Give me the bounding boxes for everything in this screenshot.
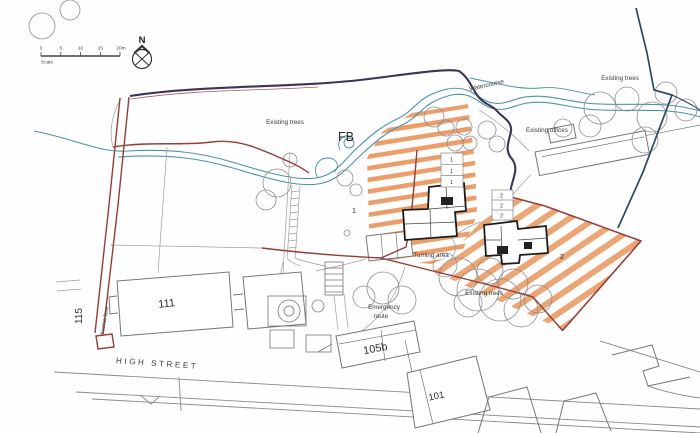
bay1-label: 1 [450, 169, 453, 175]
scale-tick-20m: 20m [116, 46, 125, 52]
high-street-label: HIGH STREET [116, 356, 199, 371]
existing-offices-label: Existing offices [526, 127, 568, 134]
emergency-route-label-2: route [374, 313, 389, 320]
bay1-label: 1 [450, 158, 453, 164]
north-label: N [139, 35, 146, 46]
existing-trees-topright-label: Existing trees [601, 75, 639, 82]
scale-label: Scale [41, 60, 53, 66]
parking-bays-plot2: 2 2 2 [492, 190, 513, 220]
existing-trees-center-label: Existing trees [465, 290, 503, 297]
house-111-label: 111 [158, 297, 176, 311]
bay2-label: 2 [500, 214, 503, 220]
bay2-label: 2 [500, 194, 503, 200]
high-street-road [54, 372, 700, 433]
scale-bar [41, 52, 120, 56]
site-plan: 1 1 1 2 2 2 0 5 10 15 20m Scale N Existi… [0, 0, 700, 433]
boundary-dark-blue [618, 8, 700, 228]
north-arrow-icon [133, 46, 152, 69]
building-101 [407, 356, 490, 428]
house-115-label: 115 [74, 308, 85, 324]
scale-tick-5: 5 [59, 46, 62, 52]
scale-tick-10: 10 [78, 46, 84, 52]
footbridge-label: FB [338, 130, 354, 144]
bay1-label: 1 [450, 180, 453, 186]
plot2-number: 2 [560, 252, 564, 261]
access-lane-label: Access lane [100, 306, 111, 336]
parking-bays-plot1: 1 1 1 [441, 153, 463, 187]
emergency-route-label-1: Emergency [368, 304, 401, 311]
building-street-b [556, 393, 611, 433]
bay2-label: 2 [500, 204, 503, 210]
existing-trees-belt-label: Existing trees [266, 119, 304, 126]
building-adjacent-111 [243, 272, 306, 329]
site-plan-canvas: 1 1 1 2 2 2 0 5 10 15 20m Scale N Existi… [0, 0, 700, 433]
turning-area-label: Turning area [413, 252, 449, 259]
scale-tick-0: 0 [40, 46, 43, 52]
watercourse-stream [34, 78, 700, 185]
watercourse-label: Watercourse [469, 78, 506, 93]
plot1-number: 1 [352, 206, 356, 215]
scale-tick-15: 15 [98, 46, 104, 52]
